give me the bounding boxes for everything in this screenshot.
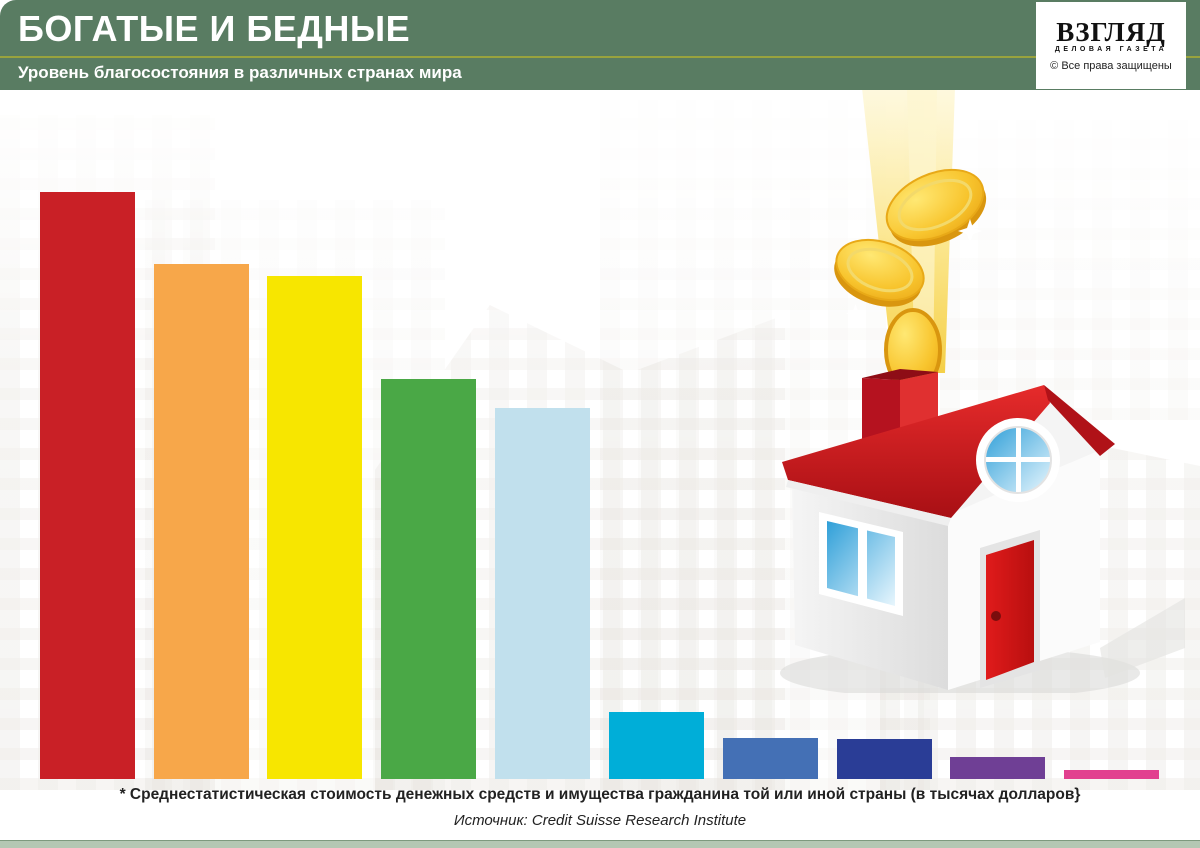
bar-rect [609,712,704,779]
header: БОГАТЫЕ И БЕДНЫЕ Уровень благосостояния … [0,0,1200,90]
chart-area: 372* Швейцария 326* Норвегия 320* Австра… [0,0,1200,848]
logo-name: ВЗГЛЯД [1056,19,1166,45]
bottom-strip [0,840,1200,848]
source-note: Источник: Credit Suisse Research Institu… [0,812,1200,829]
page-title: БОГАТЫЕ И БЕДНЫЕ [18,8,410,50]
logo-copyright: © Все права защищены [1050,60,1172,72]
bar-rect [154,264,249,779]
infographic-canvas: 372* Швейцария 326* Норвегия 320* Австра… [0,0,1200,848]
bar-rect [723,738,818,779]
footnote-asterisk-note: * Среднестатистическая стоимость денежны… [0,786,1200,804]
page-subtitle: Уровень благосостояния в различных стран… [18,63,462,83]
logo-tagline: ДЕЛОВАЯ ГАЗЕТА [1055,46,1167,53]
bar-rect [837,739,932,779]
bar-rect [40,192,135,779]
header-divider [0,56,1200,58]
bar-rect [381,379,476,779]
bar-rect [495,408,590,779]
bar-rect [950,757,1045,779]
bar-rect [267,276,362,779]
logo-box: ВЗГЛЯД ДЕЛОВАЯ ГАЗЕТА © Все права защище… [1036,2,1186,89]
bar-rect [1064,770,1159,779]
